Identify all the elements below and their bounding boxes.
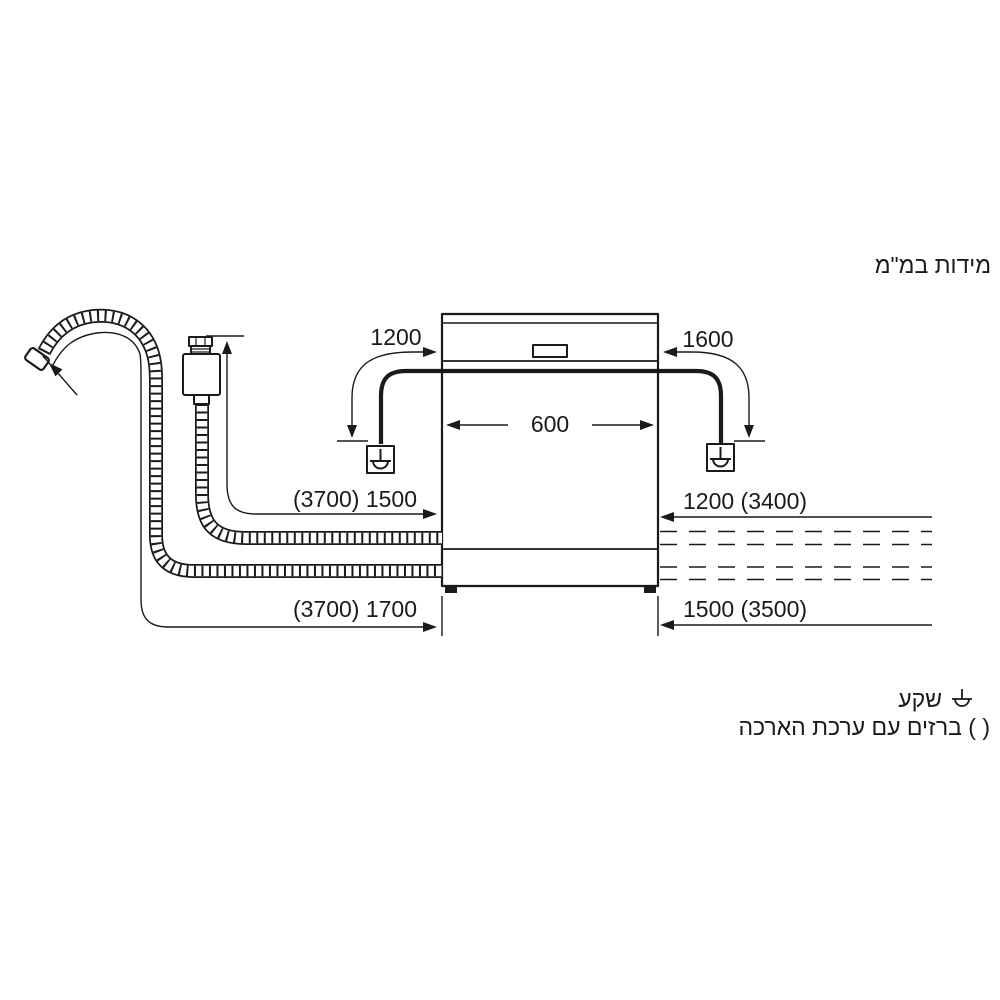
hose-continuation-dashed: [660, 532, 932, 580]
arrowhead-left: [660, 512, 674, 522]
power-socket-icon: [949, 686, 975, 712]
dim-label-right-lower: 1500 (3500): [683, 596, 863, 622]
arrowhead-left: [663, 347, 677, 357]
dim-label-right-upper: 1200 (3400): [683, 488, 863, 514]
dim-label-inlet-hose: (3700) 1500: [267, 486, 417, 512]
socket-symbol-right: [707, 444, 734, 471]
dishwasher-outline: [442, 314, 658, 593]
arrowhead-right: [423, 622, 437, 632]
arrowhead-right: [640, 420, 654, 430]
leader-1200: [337, 347, 437, 441]
arrowhead-left: [660, 620, 674, 630]
arrowhead-right: [423, 509, 437, 519]
leader-drain-length: [43, 332, 437, 632]
arrowhead-left: [446, 420, 460, 430]
legend-socket-label: שקע: [898, 686, 942, 712]
inlet-hose: [202, 404, 442, 538]
foot-left: [445, 586, 457, 593]
dim-label-drain-hose: (3700) 1700: [267, 596, 417, 622]
arrowhead-down: [744, 425, 754, 438]
aquastop-valve: [183, 337, 220, 404]
page-title: מידות במ"מ: [791, 252, 991, 278]
arrowhead-up: [222, 341, 232, 354]
arrowhead-down: [347, 425, 357, 438]
door-handle: [533, 345, 567, 357]
dim-label-600: 600: [508, 411, 592, 437]
installation-diagram: מידות במ"מ 1200 1600 600 (3700) 1500 120…: [0, 0, 1000, 1000]
extension-lines: [442, 596, 658, 636]
dim-label-1600: 1600: [678, 326, 738, 352]
socket-symbol-left: [367, 446, 394, 473]
legend-parentheses-label: ( ) ברזים עם ערכת הארכה: [690, 714, 990, 740]
leader-1600: [663, 347, 765, 441]
legend-socket-row: שקע: [700, 686, 975, 712]
foot-right: [644, 586, 656, 593]
dim-label-1200: 1200: [366, 324, 426, 350]
